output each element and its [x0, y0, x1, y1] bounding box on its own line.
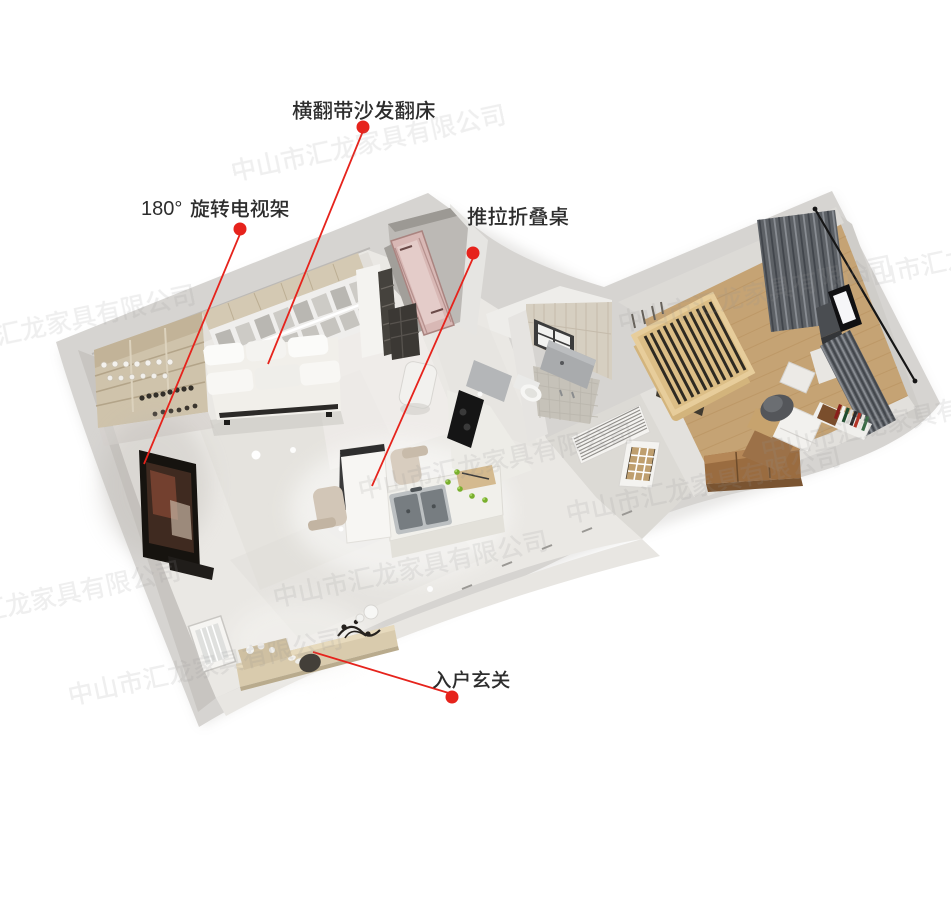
svg-text:180°: 180° [141, 198, 182, 220]
